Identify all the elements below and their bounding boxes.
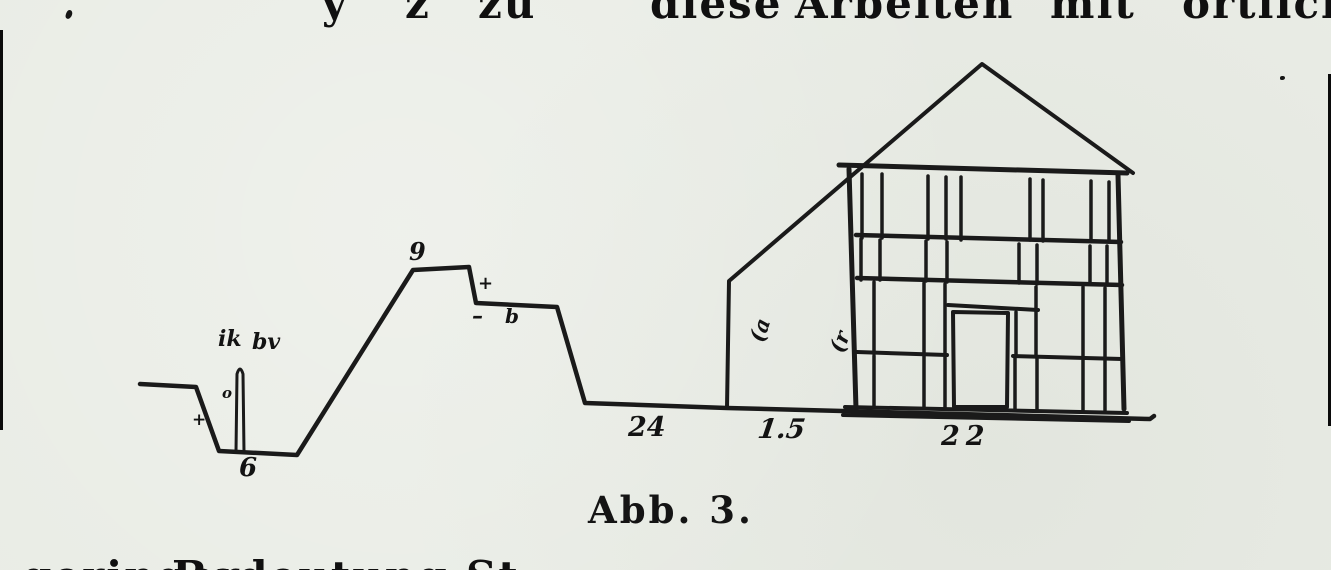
label-hill-9: 9 xyxy=(409,240,426,264)
timber-rail xyxy=(857,352,947,355)
house-right-wall xyxy=(1118,175,1124,409)
label-distance-1-5: 1.5 xyxy=(756,416,807,443)
label-step-cross: + xyxy=(478,275,493,293)
door-lintel-rail xyxy=(948,305,1038,310)
label-pole-right: bv xyxy=(252,331,280,353)
label-distance-22: 22 xyxy=(941,423,991,450)
house-eaves-line xyxy=(839,165,1127,173)
timber-rail xyxy=(856,235,1121,242)
label-ditch-cross: + xyxy=(192,412,206,429)
label-step-b: b xyxy=(505,306,519,326)
label-ditch-circle: o xyxy=(222,386,232,401)
house-left-wall xyxy=(849,169,856,409)
figure-caption: Abb. 3. xyxy=(588,488,754,532)
label-ditch-width-6: 6 xyxy=(239,455,257,481)
cross-section-figure xyxy=(0,0,1331,570)
scanned-book-page: y z zu diese Arbeiten mit örtliche gerin… xyxy=(0,0,1331,570)
label-pole-left: ik xyxy=(218,328,242,350)
label-distance-24: 24 xyxy=(628,414,666,441)
house-door xyxy=(953,312,1008,407)
scan-edge-artifact-left xyxy=(0,30,3,430)
label-step-dash: – xyxy=(472,305,483,327)
measuring-pole xyxy=(236,369,244,452)
timber-rail xyxy=(857,278,1122,285)
